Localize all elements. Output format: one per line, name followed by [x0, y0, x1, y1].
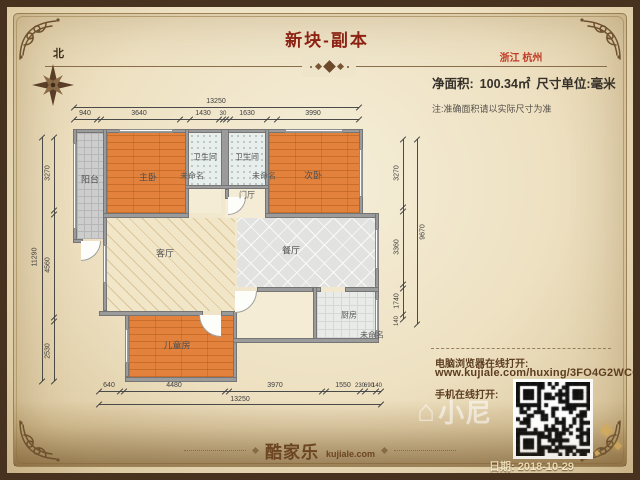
dim-label: 1740	[394, 293, 401, 309]
footer-separator	[431, 348, 611, 349]
compass-rose-icon	[31, 63, 75, 112]
room-label-master-bedroom: 主卧	[139, 171, 157, 184]
share-url: www.kujiale.com/huxing/3FO4G2WCCO2C	[435, 367, 640, 379]
qr-code	[513, 379, 593, 459]
area-value: 100.34㎡	[480, 77, 531, 91]
balcony-door-arc	[81, 241, 101, 261]
window	[285, 129, 343, 133]
floorplan-sheet: 新块-副本 浙江 杭州 净面积:100.34㎡尺寸单位:毫米 注:准确面积请以实…	[0, 0, 640, 480]
dim-label: 3990	[305, 110, 321, 117]
wall	[233, 311, 237, 382]
room-label-unnamed-1: 未命名	[180, 171, 204, 182]
room-label-living-room: 客厅	[156, 247, 174, 260]
area-note: 注:准确面积请以实际尺寸为准	[432, 102, 552, 115]
wall	[257, 287, 313, 292]
window	[359, 149, 363, 197]
dim-line	[42, 137, 43, 381]
dim-label: 13250	[230, 396, 249, 403]
dim-line	[74, 107, 359, 108]
balcony-floor	[77, 133, 103, 239]
room-label-bathroom-1: 卫生间	[193, 152, 217, 163]
wall	[103, 129, 107, 311]
dim-label: 3970	[267, 382, 283, 389]
brand-logo-row: 酷家乐 kujiale.com	[157, 438, 483, 463]
dim-label: 1550	[335, 382, 351, 389]
window	[103, 245, 107, 283]
location-label: 浙江 杭州	[427, 49, 615, 64]
north-label: 北	[53, 45, 64, 61]
dim-label: 940	[79, 110, 91, 117]
wall	[99, 311, 203, 316]
watermark: ⌂ 小尼	[417, 393, 492, 430]
divider-ornament-icon	[302, 56, 356, 77]
wall	[221, 129, 229, 189]
room-label-unnamed-2: 未命名	[252, 171, 276, 182]
room-label-dining-room: 餐厅	[282, 244, 300, 257]
dim-label: 140	[372, 383, 382, 389]
dim-label: 3270	[394, 165, 401, 181]
living-room-floor	[107, 218, 235, 311]
dim-label: 4480	[166, 382, 182, 389]
wall	[345, 287, 379, 292]
unit-label: 尺寸单位:毫米	[536, 77, 615, 91]
dim-label: 3640	[131, 110, 147, 117]
dim-line	[99, 404, 381, 405]
date-label: 日期: 2018-10-29	[489, 458, 574, 474]
room-label-entry-hall: 门厅	[239, 190, 255, 201]
window	[73, 143, 77, 229]
brand-logo: 酷家乐	[265, 438, 319, 463]
watermark-text: 小尼	[438, 393, 492, 430]
diamond-icon	[381, 447, 388, 454]
dim-label: 140	[394, 316, 400, 326]
window	[375, 229, 379, 269]
dim-label: 1430	[195, 110, 211, 117]
dim-label: 11290	[32, 248, 39, 267]
room-label-second-bedroom: 次卧	[304, 169, 322, 182]
area-line: 净面积:100.34㎡尺寸单位:毫米	[432, 73, 622, 92]
dining-room-floor	[237, 218, 375, 287]
corner-flourish-icon	[16, 417, 64, 465]
dim-label: 3270	[45, 165, 52, 181]
window	[375, 299, 379, 331]
ornament-line	[394, 450, 456, 451]
room-label-balcony: 阳台	[81, 173, 99, 186]
floorplan: 阳台 主卧 未命名 卫生间 卫生间 未命名 次卧 门厅 客厅 餐厅 厨房 未命名…	[73, 129, 383, 385]
dim-label: 640	[103, 382, 115, 389]
wall	[103, 213, 189, 218]
room-label-unnamed-3: 未命名	[360, 330, 384, 341]
diamond-icon	[252, 447, 259, 454]
dim-label: 3360	[394, 239, 401, 255]
room-label-kitchen: 厨房	[341, 310, 357, 321]
window	[125, 329, 129, 363]
dim-label: 2530	[45, 343, 52, 359]
dim-line	[403, 139, 404, 319]
dim-label: 9670	[420, 224, 427, 240]
wall	[233, 338, 379, 343]
window	[119, 129, 173, 133]
dim-line	[54, 137, 55, 381]
dim-line	[99, 391, 381, 392]
wall	[313, 287, 317, 343]
area-label: 净面积:	[432, 77, 474, 91]
dim-label: 1630	[239, 110, 255, 117]
room-label-bathroom-2: 卫生间	[235, 152, 259, 163]
page-title: 新块-副本	[7, 26, 640, 51]
wall	[265, 213, 379, 218]
unnamed-area-floor	[189, 189, 221, 213]
dim-line	[417, 139, 418, 324]
brand-domain: kujiale.com	[326, 449, 375, 459]
house-icon: ⌂	[417, 399, 436, 425]
dim-label: 30	[220, 111, 227, 117]
room-label-kids-room: 儿童房	[163, 339, 190, 352]
ornament-line	[184, 450, 246, 451]
dim-label: 13250	[206, 98, 225, 105]
dim-label: 4560	[45, 257, 52, 273]
